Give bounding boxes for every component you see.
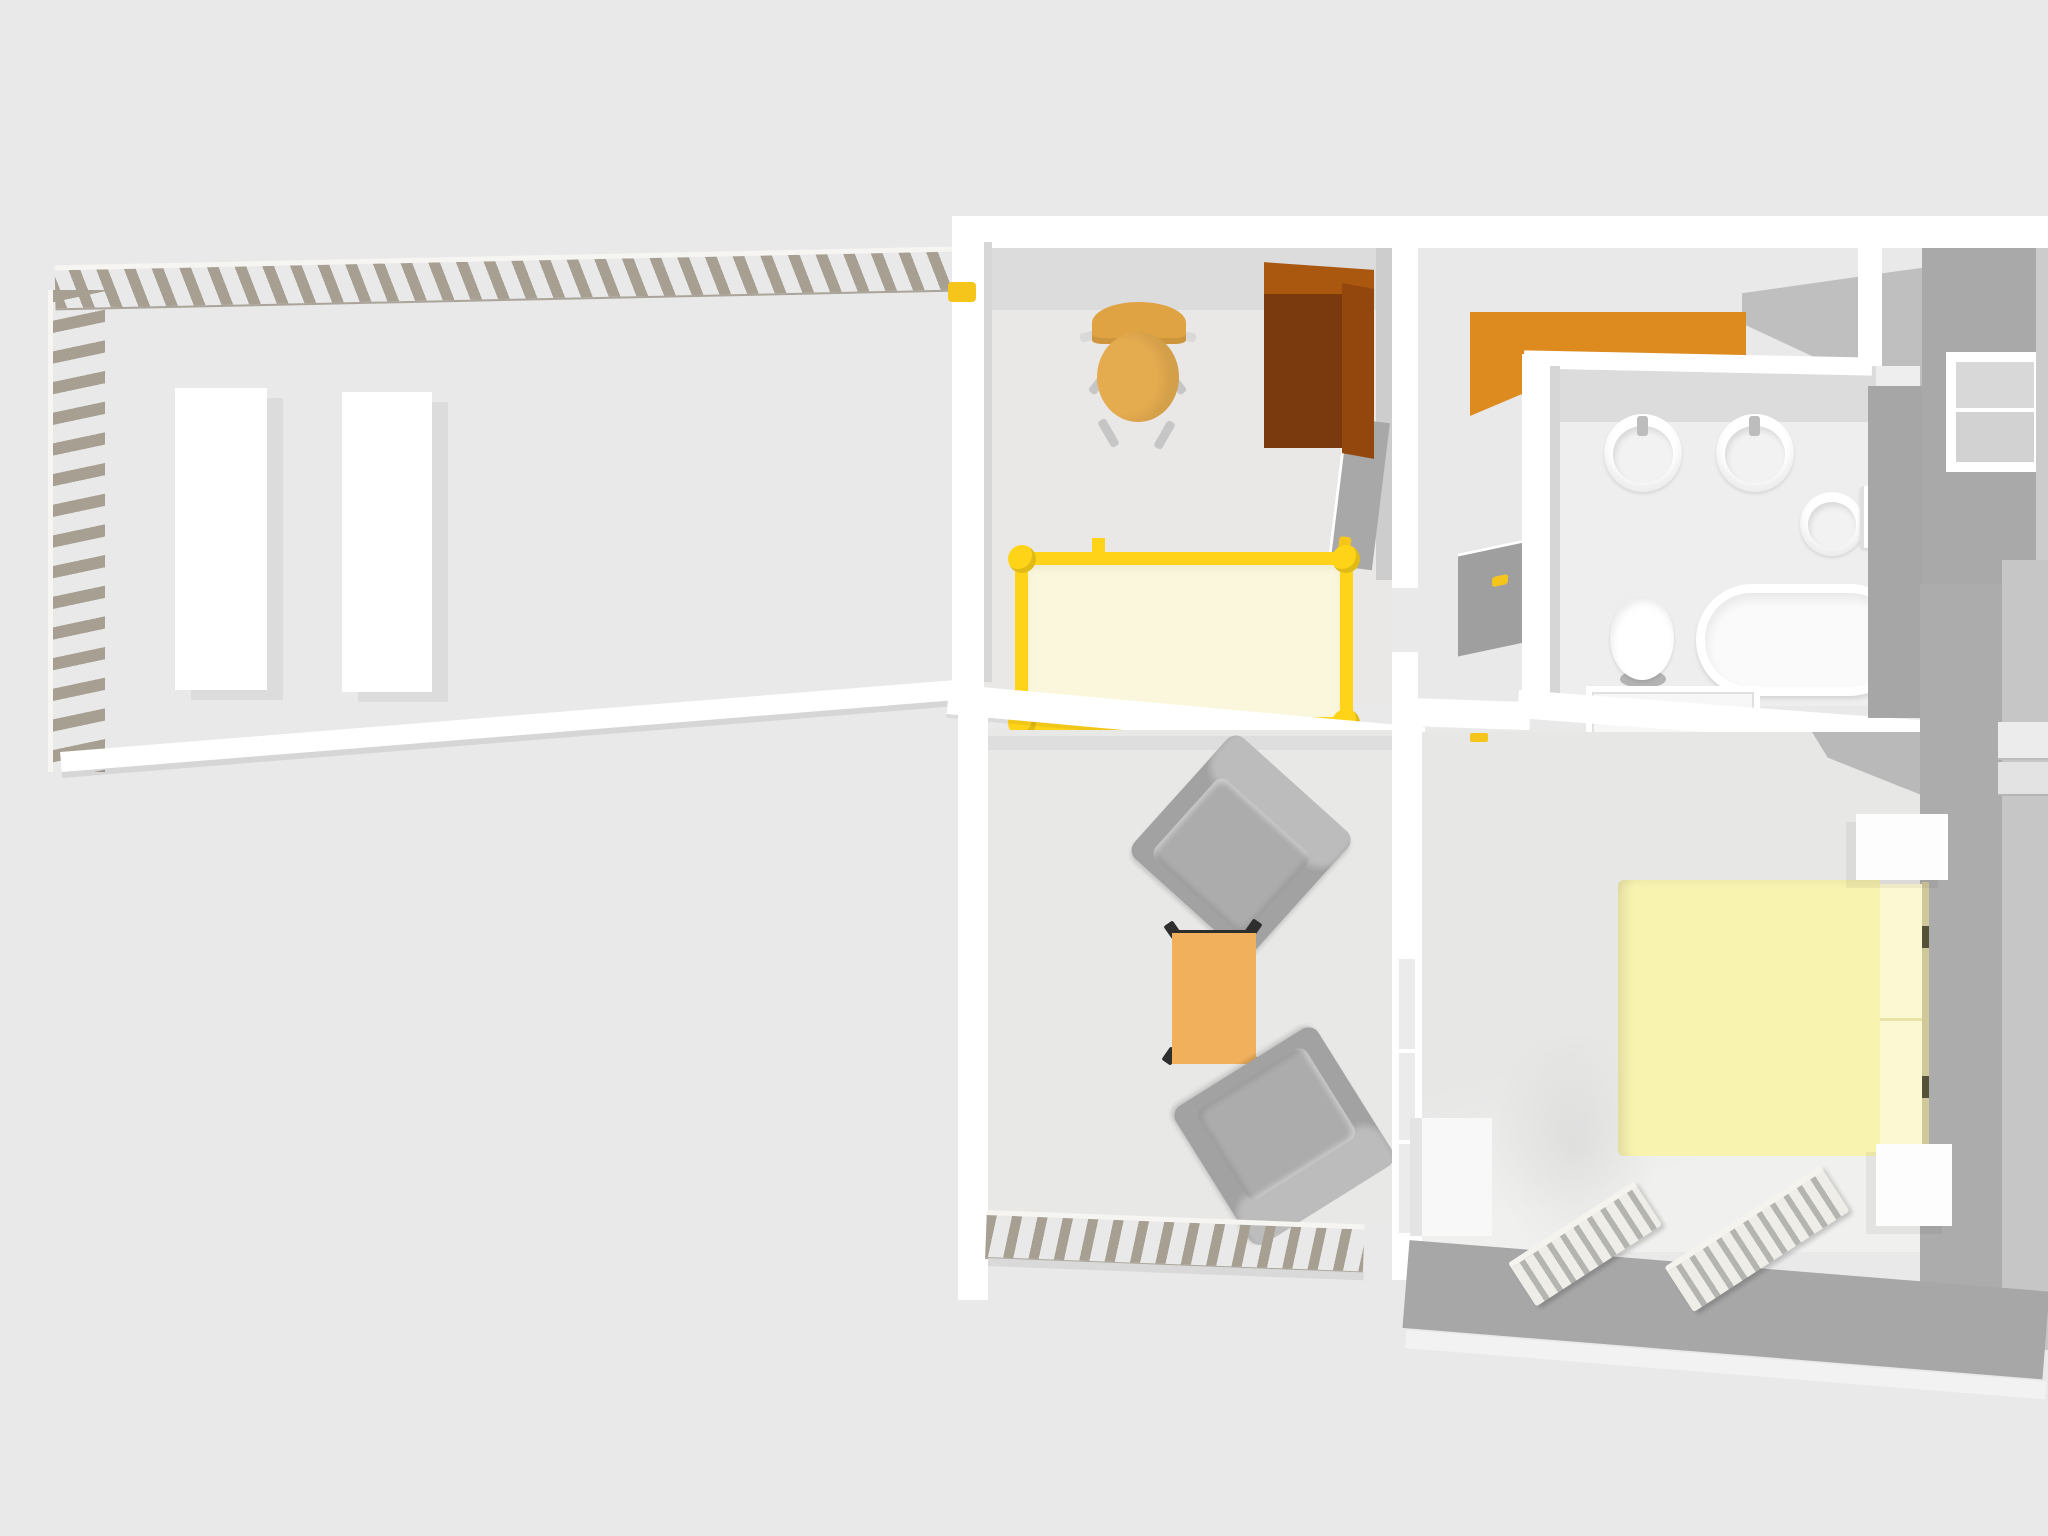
nightstand-2[interactable] — [1876, 1144, 1952, 1226]
bedroom-dresser[interactable] — [1410, 1118, 1492, 1236]
hallway-wall-step — [1858, 222, 1882, 372]
bathroom-east-wall-face — [1868, 386, 1922, 718]
wardrobe-side-face — [1342, 283, 1374, 459]
crib-knob — [1008, 545, 1036, 573]
living-north-wall-face — [988, 736, 1392, 750]
headboard-post — [1922, 926, 1929, 948]
faucet-icon — [1749, 416, 1760, 436]
terrace-railing-top — [55, 247, 954, 311]
terrace-front-wall — [60, 680, 957, 772]
wall-shelf-1[interactable] — [1998, 722, 2048, 758]
building-top-wall — [952, 216, 2048, 248]
bed-headboard — [1922, 882, 1929, 1154]
sun-lounger-2[interactable] — [342, 392, 432, 692]
headboard-post — [1922, 1076, 1929, 1098]
wall-shelf-2[interactable] — [1998, 762, 2048, 794]
terrace-railing-left — [48, 290, 105, 772]
bedroom-east-wall-face — [1920, 584, 2002, 1350]
window-pane — [1956, 362, 2034, 408]
window-pane — [1956, 412, 2034, 462]
nursery-left-wall-face — [984, 242, 992, 682]
faucet-icon — [1637, 416, 1648, 436]
corridor-door-handle-icon — [1470, 733, 1488, 742]
table-top — [1172, 930, 1256, 1064]
door-handle-icon — [1492, 574, 1508, 587]
floor-plan-3d-view — [0, 0, 2048, 1536]
nursery-east-wall-face — [1376, 240, 1392, 580]
toilet[interactable] — [1610, 596, 1674, 680]
wall-basin[interactable] — [1800, 492, 1864, 556]
bathroom-door[interactable] — [1458, 539, 1528, 657]
bathroom-window — [1946, 352, 2044, 472]
glass-door-mullion — [1399, 1049, 1415, 1053]
bathroom-left-wall-face — [1550, 366, 1560, 702]
nursery-right-wall — [1392, 216, 1418, 588]
double-bed[interactable] — [1618, 880, 1928, 1156]
bathroom-sink-1[interactable] — [1604, 414, 1682, 492]
sun-lounger-1[interactable] — [175, 388, 267, 690]
living-left-wall — [958, 700, 988, 1300]
corridor-bottom-wall — [1406, 698, 1531, 730]
coffee-table[interactable] — [1172, 930, 1256, 1064]
crib-post — [1092, 538, 1105, 558]
wardrobe-front-face — [1264, 294, 1342, 448]
bathroom-left-wall — [1522, 354, 1550, 706]
chair-seat — [1097, 332, 1179, 422]
crib-knob — [1332, 545, 1360, 573]
bathroom-sink-2[interactable] — [1716, 414, 1794, 492]
bed-pillows — [1880, 884, 1928, 1152]
railing-end-cap — [948, 282, 976, 302]
nightstand-1[interactable] — [1856, 814, 1948, 880]
nursery-wardrobe[interactable] — [1262, 262, 1376, 460]
nursery-chair[interactable] — [1070, 295, 1200, 455]
bedroom-outer-column — [2002, 560, 2048, 1350]
pillow-divider — [1880, 1018, 1928, 1021]
bed-duvet — [1618, 880, 1880, 1156]
